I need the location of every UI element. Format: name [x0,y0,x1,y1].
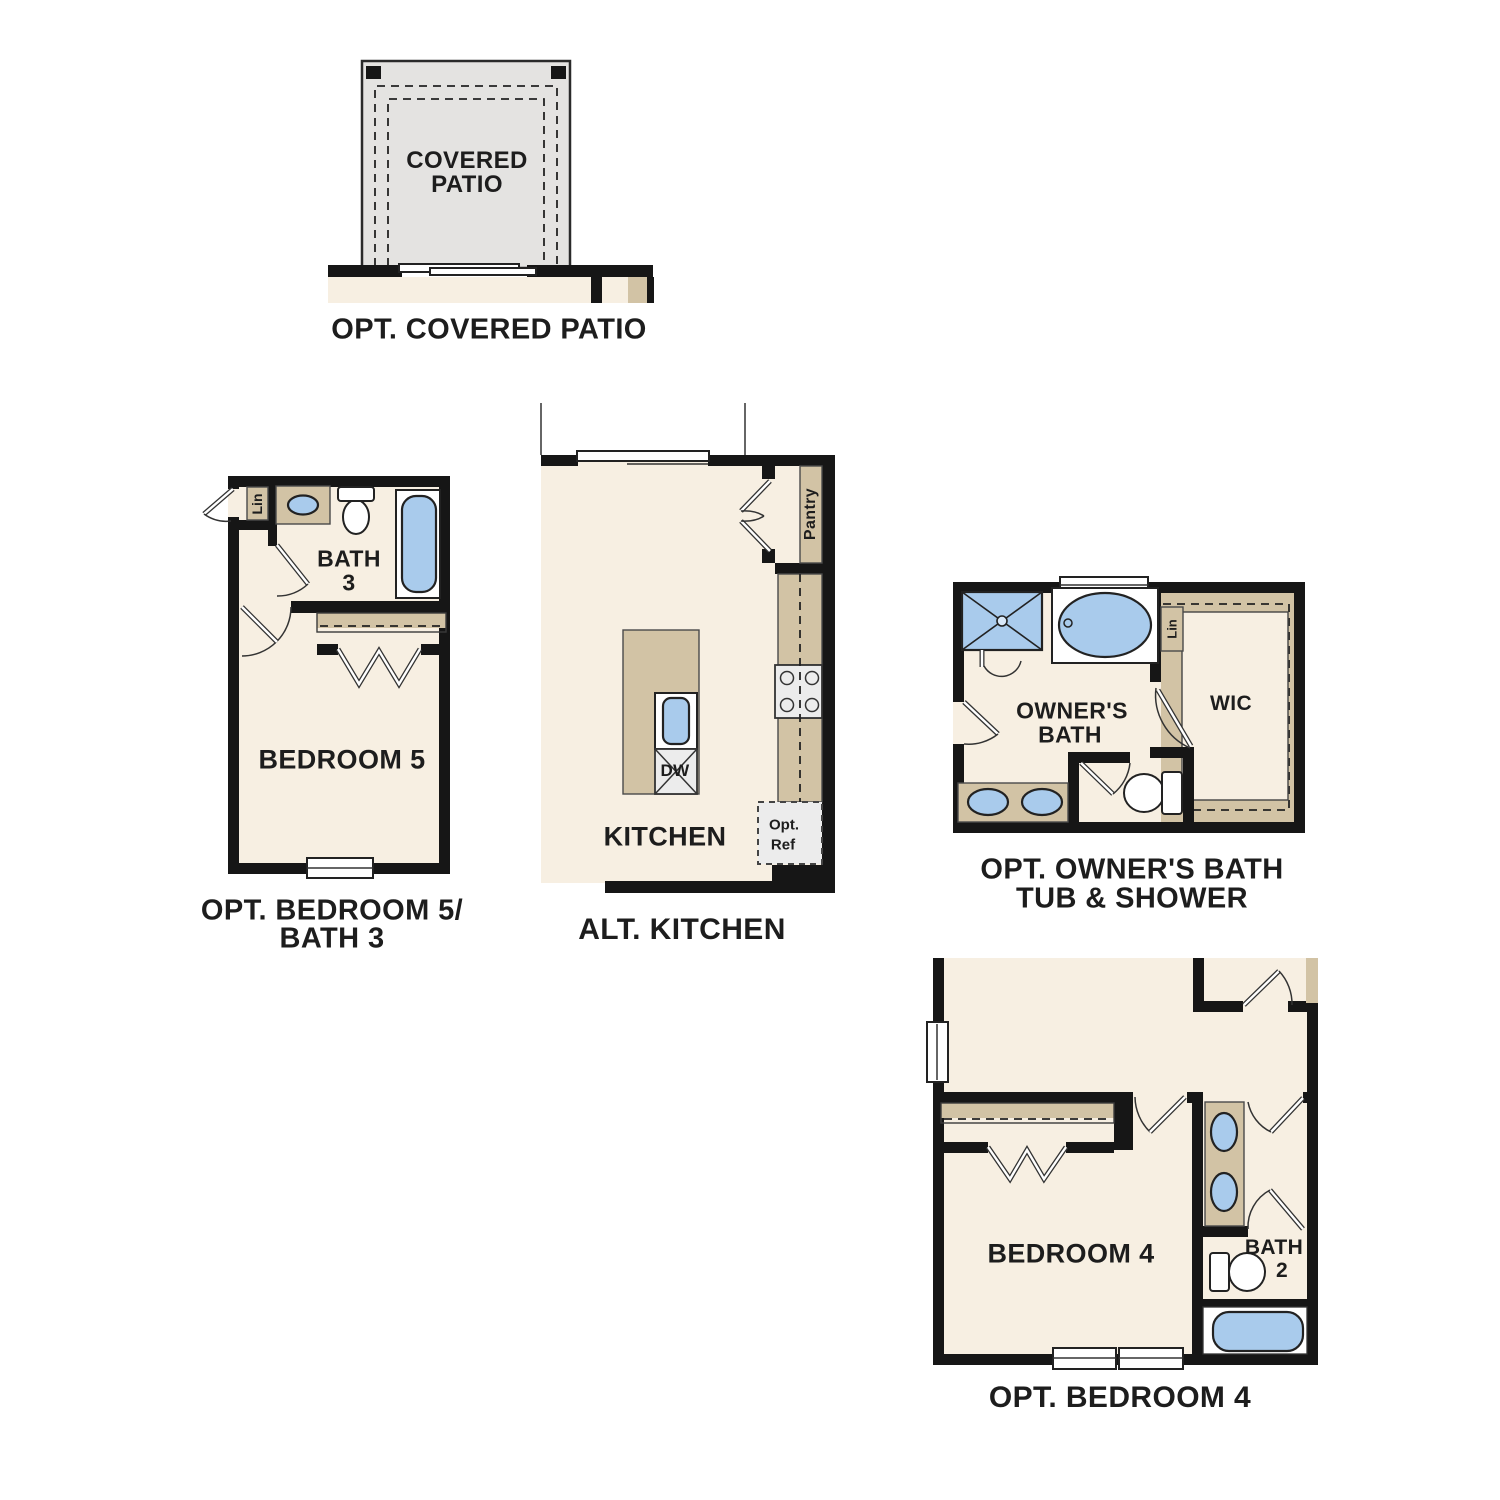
bath2-label-line1: BATH [1245,1236,1303,1260]
bedroom5-label: BEDROOM 5 [258,745,425,776]
shower-drain [997,616,1007,626]
owners-linen-label: Lin [1165,619,1180,639]
bedroom5-bath3-plan [204,476,450,878]
bath2-bathtub [1203,1307,1307,1354]
pantry-label: Pantry [802,488,820,540]
opt-ref-label-line1: Opt. [769,817,799,834]
opt-ref-label-line2: Ref [771,837,795,854]
owners-toilet [1124,772,1182,814]
bath2-label-line2: 2 [1276,1259,1288,1283]
owners-bath-plan [953,577,1305,833]
kitchen-label: KITCHEN [604,822,727,853]
bath3-label-line1: BATH [317,546,381,573]
patio-post-right [551,66,566,79]
wic-label: WIC [1210,692,1252,716]
soaking-tub [1059,593,1151,657]
owners-bath-label-line1: OWNER'S [1016,698,1128,725]
floorplan-options-sheet: COVERED PATIO OPT. COVERED PATIO Lin BAT… [0,0,1500,1500]
left-window [927,1022,948,1082]
tub-faucet [1064,619,1072,627]
bedroom4-label: BEDROOM 4 [987,1239,1154,1270]
bath2-sink-lower [1211,1173,1237,1211]
alt-kitchen-caption: ALT. KITCHEN [578,913,786,947]
covered-patio-caption: OPT. COVERED PATIO [331,314,647,347]
dishwasher-label: DW [660,761,689,781]
house-wall-strip [328,264,654,303]
vanity-sink-right [1022,789,1062,815]
covered-patio-label-line2: PATIO [431,171,503,199]
bottom-windows [1053,1348,1183,1369]
stove [775,665,822,718]
owners-bath-caption-line2: TUB & SHOWER [1016,883,1248,916]
bedroom5-window [307,858,373,878]
bath3-label-line2: 3 [342,570,355,597]
patio-post-left [366,66,381,79]
bedroom4-caption: OPT. BEDROOM 4 [989,1381,1251,1415]
bedroom4-plan [927,958,1318,1369]
sliding-door-panel [430,268,536,275]
bath3-linen-label: Lin [249,494,265,515]
bath3-sink [288,496,318,515]
bath3-bathtub [402,496,436,592]
kitchen-sink [663,698,689,744]
vanity-sink-left [968,789,1008,815]
bath2-sink-upper [1211,1113,1237,1151]
bedroom5-caption-line2: BATH 3 [280,923,385,956]
owners-bath-label-line2: BATH [1038,722,1102,749]
shower [962,592,1042,650]
